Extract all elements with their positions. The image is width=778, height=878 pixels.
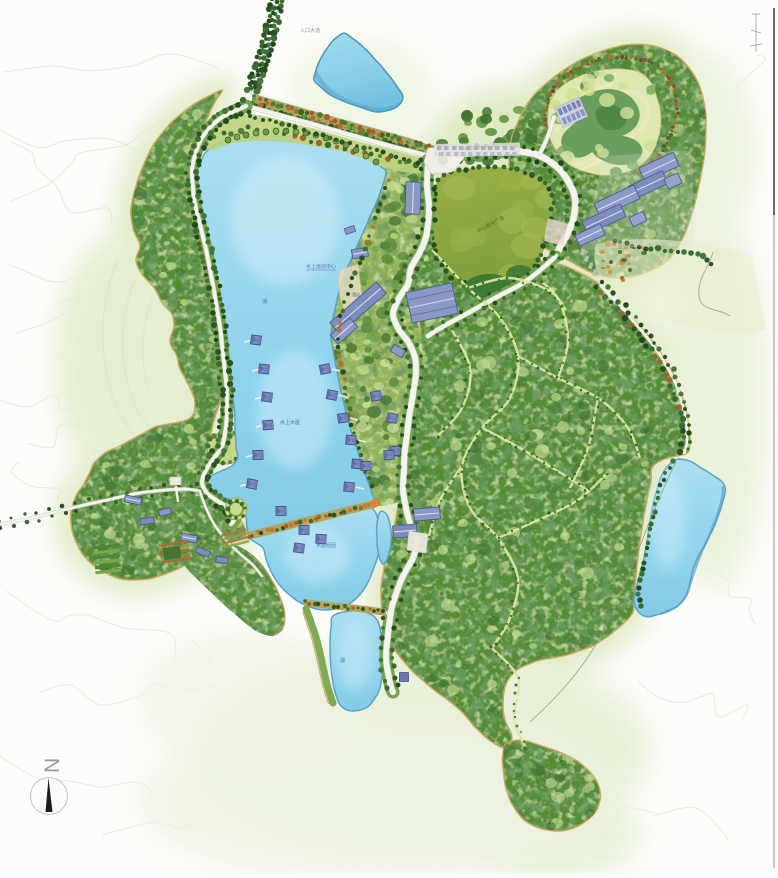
svg-text:湖: 湖	[262, 298, 267, 305]
svg-text:入口大道: 入口大道	[300, 27, 320, 34]
svg-text:N: N	[41, 758, 64, 774]
svg-text:酒店: 酒店	[352, 291, 360, 297]
svg-text:湖: 湖	[340, 657, 345, 664]
svg-text:木屋组团: 木屋组团	[316, 542, 336, 549]
svg-text:水上木屋: 水上木屋	[280, 419, 300, 426]
svg-text:水上运动中心: 水上运动中心	[306, 263, 336, 270]
